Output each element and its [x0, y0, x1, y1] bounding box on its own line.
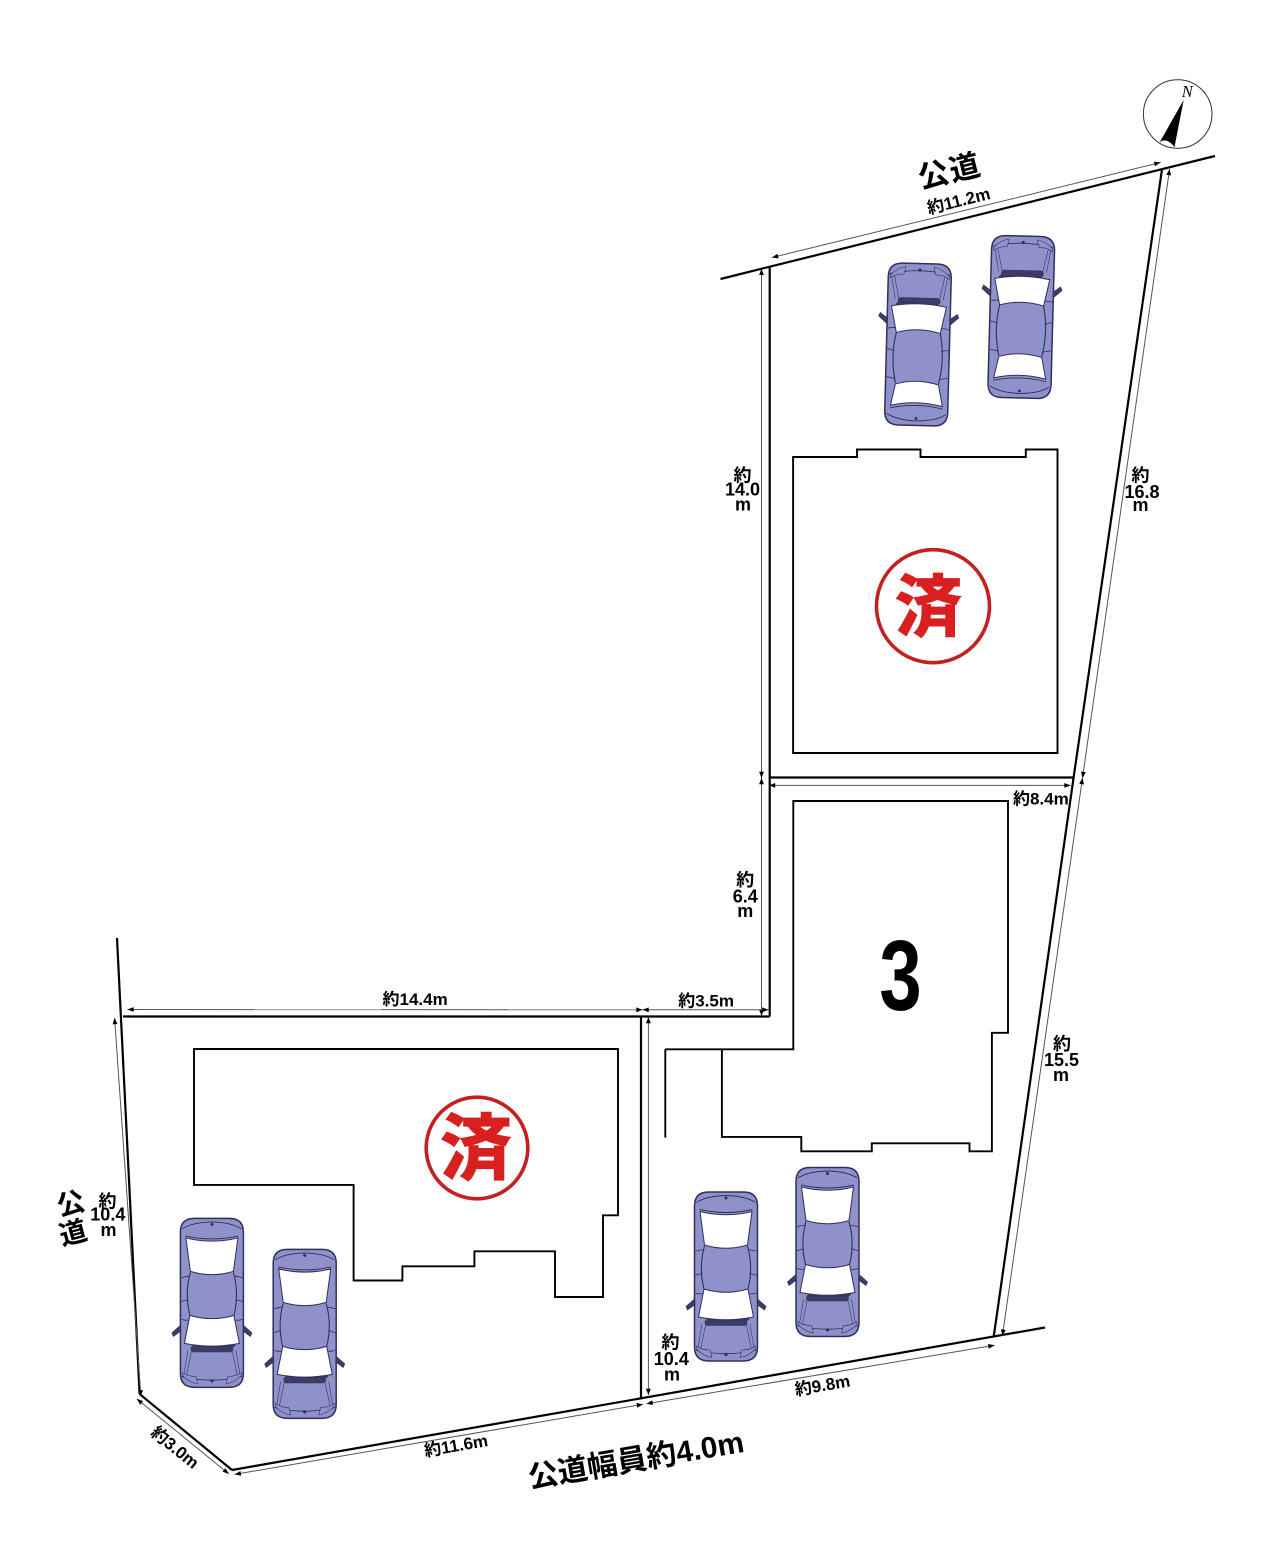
svg-text:m: m [735, 495, 751, 515]
svg-text:N: N [1181, 82, 1194, 101]
svg-text:m: m [101, 1220, 117, 1240]
svg-text:m: m [1133, 495, 1149, 515]
svg-text:3: 3 [879, 920, 921, 1031]
svg-text:m: m [737, 901, 753, 921]
svg-text:m: m [664, 1365, 680, 1385]
svg-text:8.4m: 8.4m [1030, 790, 1069, 809]
svg-text:m: m [1053, 1065, 1069, 1085]
svg-text:14.4m: 14.4m [400, 990, 448, 1009]
svg-text:3.5m: 3.5m [695, 992, 734, 1011]
